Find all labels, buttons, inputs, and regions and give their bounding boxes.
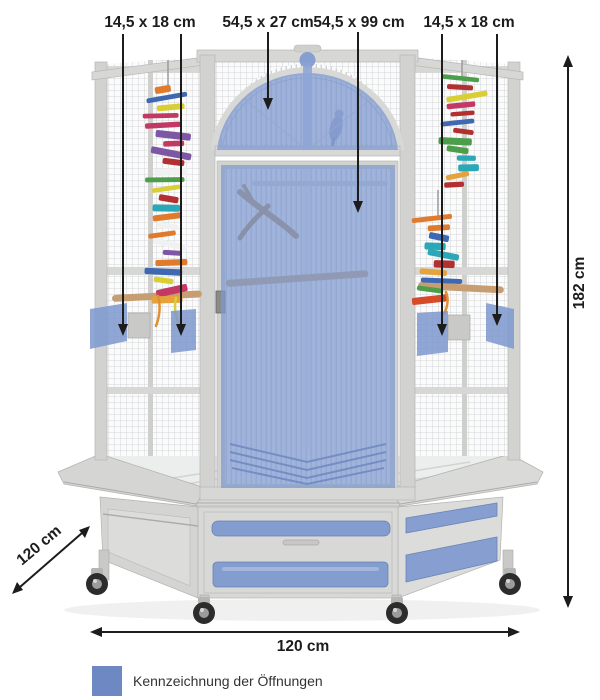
feeder-box-right [448,315,470,340]
base-front-tray-highlight-lower [213,562,388,587]
width-label: 120 cm [277,638,330,655]
width-dimension [90,627,520,637]
label-left-openings: 14,5 x 18 cm [104,14,195,31]
toy-piece [163,250,182,256]
label-arch-opening: 54,5 x 27 cm [222,14,313,31]
label-right-openings: 14,5 x 18 cm [423,14,514,31]
base-front-tray-highlight-upper [212,521,390,536]
toy-piece [434,260,455,268]
floor-shadow [64,599,540,621]
top-finial [294,45,321,52]
left-outer-post [95,62,107,460]
left-wing-mullion [148,60,153,456]
toy-piece [152,205,180,212]
right-opening-inner [417,311,448,356]
legend-label: Kennzeichnung der Öffnungen [133,672,323,689]
feeder-box-left [128,313,150,338]
right-outer-post [508,62,520,460]
toy-piece [154,168,187,176]
toy-piece [438,137,471,146]
product-dimension-diagram: 14,5 x 18 cm 54,5 x 27 cm 54,5 x 99 cm 1… [0,0,600,700]
toy-piece [458,164,479,171]
height-label: 182 cm [571,257,588,310]
front-door-highlight [221,165,395,488]
toy-piece [145,177,184,182]
toy-piece [444,181,464,187]
toy-piece [151,296,182,304]
center-bottom-rail [200,487,415,500]
aviary-diagram-canvas: 14,5 x 18 cm 54,5 x 27 cm 54,5 x 99 cm 1… [0,0,600,700]
base-front-drawer-handle [283,540,319,545]
tray-highlight-sheen [222,567,379,571]
right-opening-outer [486,303,514,349]
left-opening-inner [171,309,196,353]
left-wing-low-rail [107,387,200,394]
height-dimension [563,55,573,608]
toy-piece [457,155,476,161]
base-cabinet [99,497,513,609]
toy-piece [143,113,179,119]
right-wing-low-rail [415,387,508,394]
center-left-post [200,55,215,490]
depth-label: 120 cm [14,522,65,569]
center-right-post [400,55,415,490]
caster-wheel [499,568,521,595]
toy-piece [155,259,187,266]
legend: Kennzeichnung der Öffnungen [92,666,323,696]
right-wing-panel [415,57,508,456]
legend-swatch [92,666,122,696]
label-door-opening: 54,5 x 99 cm [313,14,404,31]
